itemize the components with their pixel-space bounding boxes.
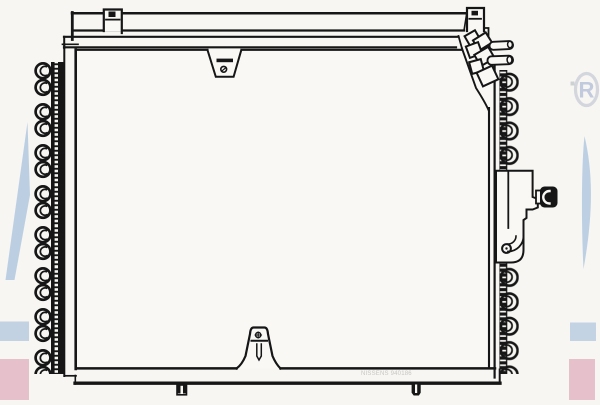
svg-text:R: R (579, 78, 595, 103)
svg-text:NISSENS 940186: NISSENS 940186 (361, 371, 412, 377)
